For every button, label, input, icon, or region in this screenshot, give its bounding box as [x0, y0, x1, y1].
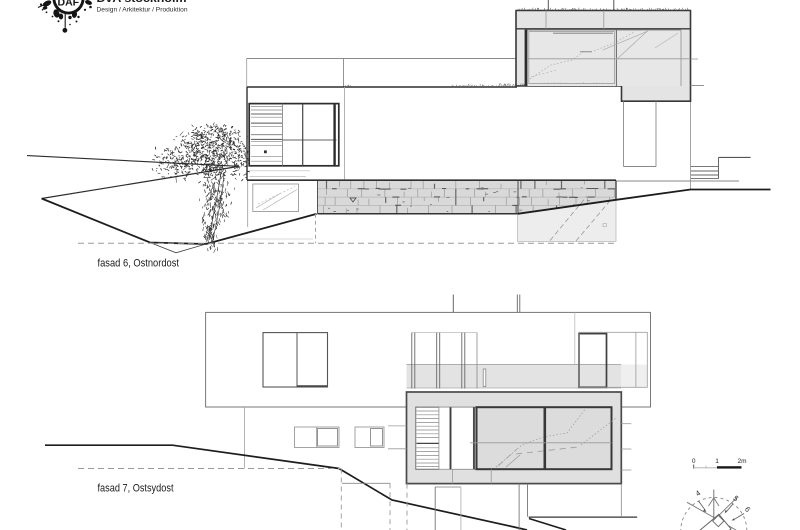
- svg-text:DvA stockholm: DvA stockholm: [97, 0, 187, 5]
- svg-text:Design / Arkitektur / Produkti: Design / Arkitektur / Produktion: [97, 6, 188, 13]
- svg-text:0: 0: [692, 458, 696, 465]
- svg-text:fasad 6, Ostnordost: fasad 6, Ostnordost: [98, 258, 180, 270]
- svg-text:fasad 7, Ostsydost: fasad 7, Ostsydost: [98, 483, 174, 495]
- svg-text:2m: 2m: [737, 458, 746, 465]
- svg-text:1: 1: [715, 458, 719, 465]
- svg-text:DAF: DAF: [58, 0, 80, 8]
